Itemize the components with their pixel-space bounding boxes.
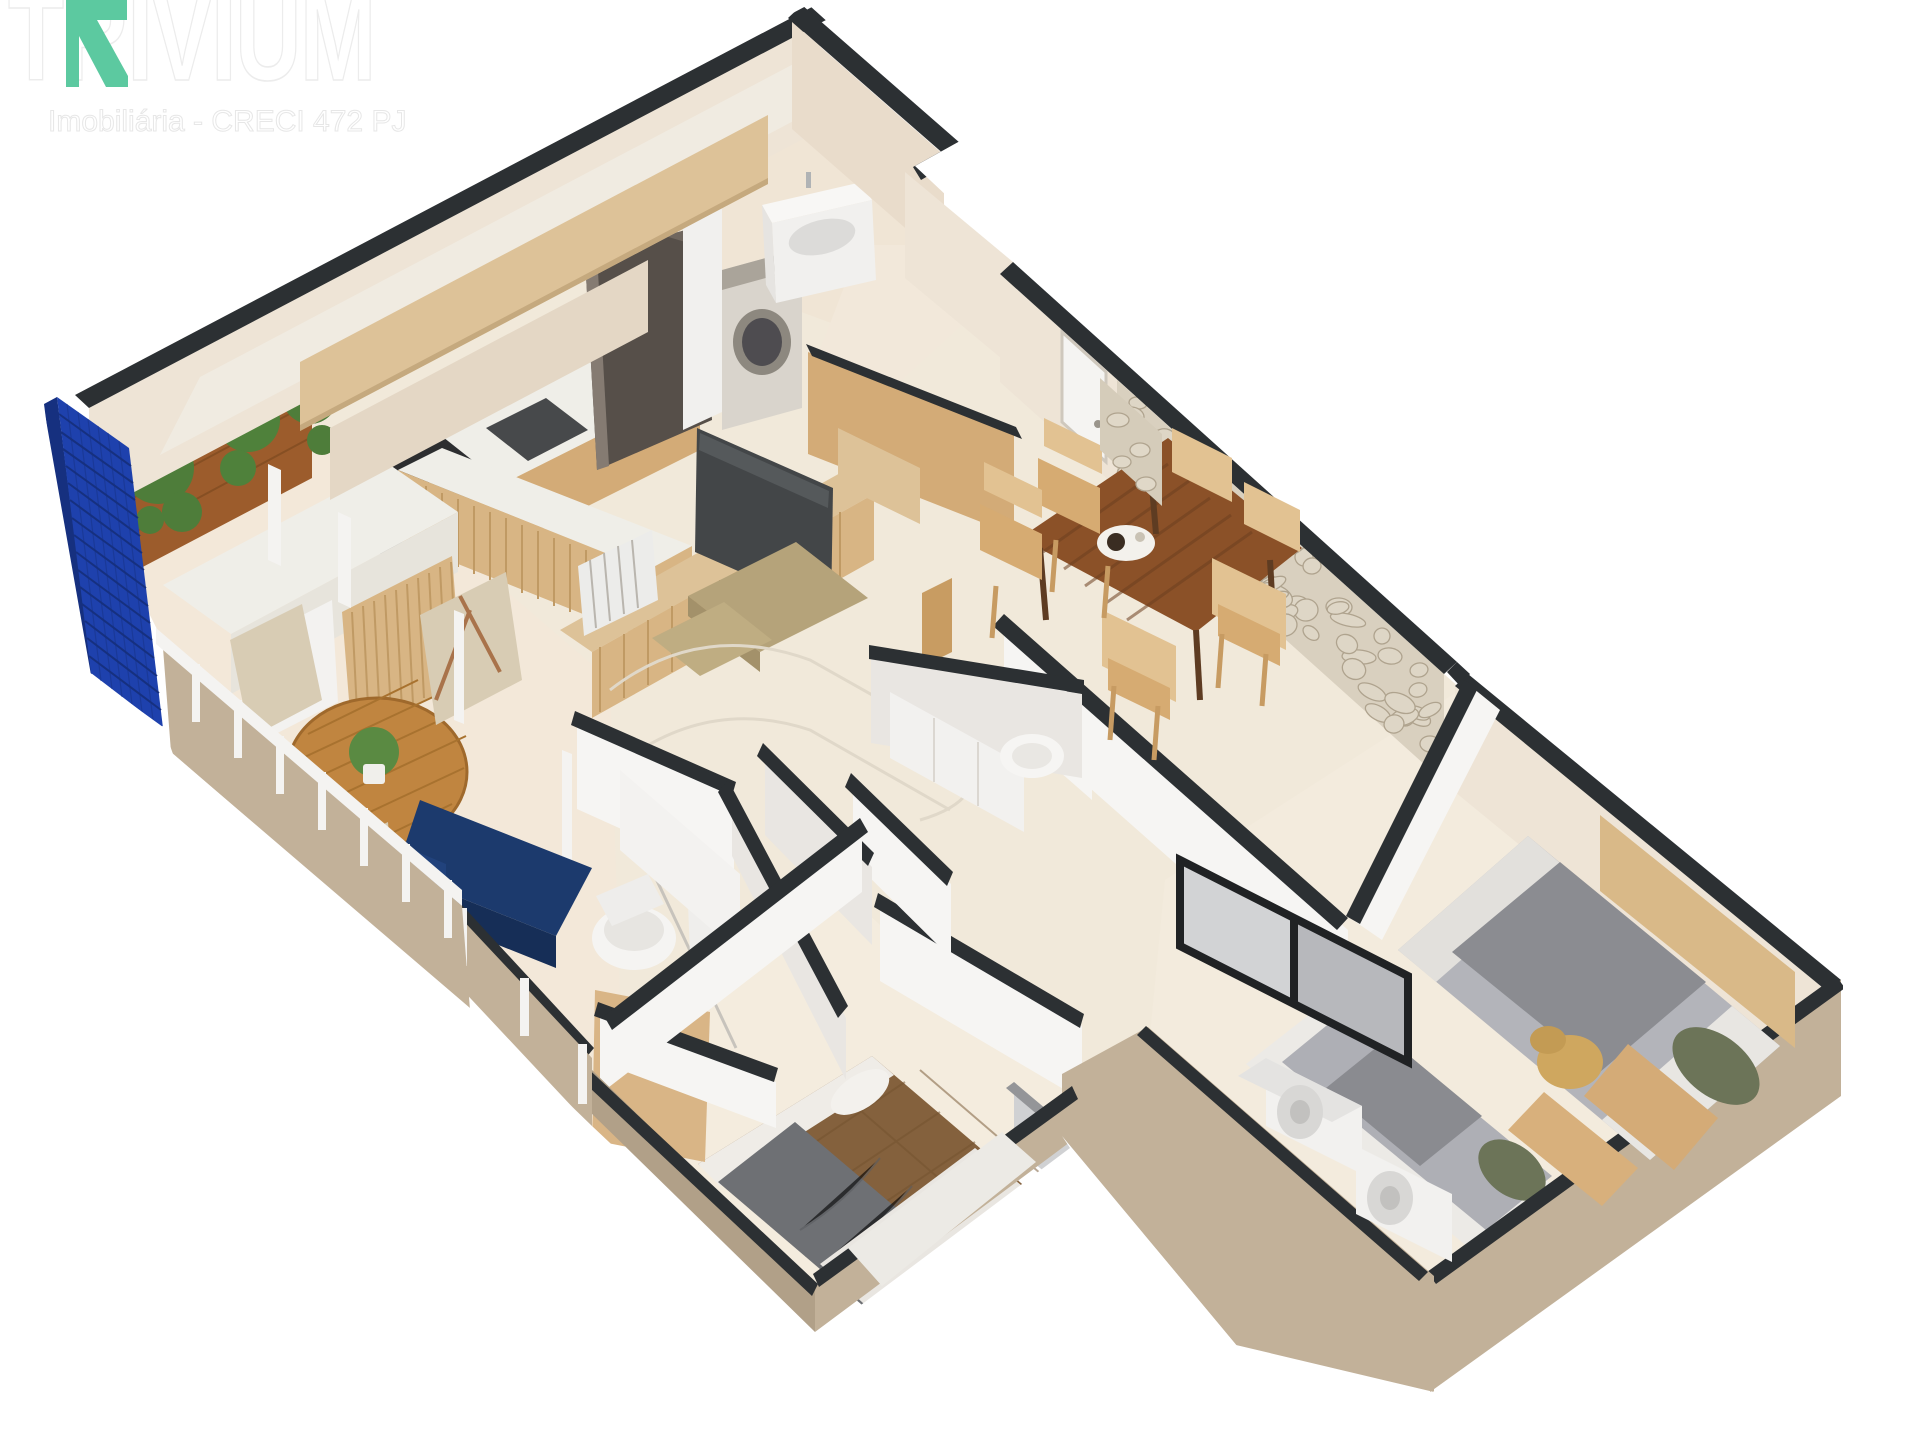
svg-text:Imobiliária - CRECI 472 PJ: Imobiliária - CRECI 472 PJ <box>48 105 406 138</box>
svg-text:TRIVIUM: TRIVIUM <box>8 0 375 107</box>
